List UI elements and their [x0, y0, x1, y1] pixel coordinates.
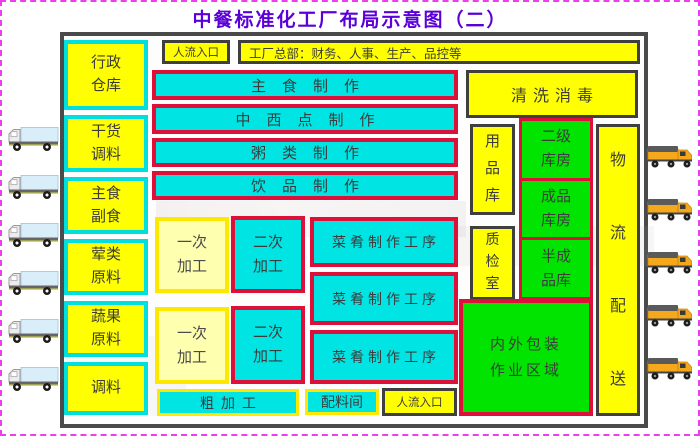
room-label: 主食制作	[235, 75, 375, 96]
delivery-truck-icon	[647, 302, 699, 328]
room-label: 质 检 室	[486, 230, 500, 296]
people-entrance-top: 人流入口	[162, 40, 230, 64]
delivery-truck-icon	[7, 270, 59, 296]
slide: 中餐标准化工厂布局示意图（二） 行政 仓库 干货 调料 主食 副食 荤类 原料 …	[0, 0, 700, 436]
room-label: 用 品 库	[485, 129, 500, 210]
room-dry-goods-seasoning: 干货 调料	[64, 115, 148, 172]
room-label: 菜肴制作工序	[328, 232, 440, 252]
room-label: 粗加工	[193, 393, 263, 413]
outbound-truck-lane	[647, 143, 693, 423]
room-rough-processing: 粗加工	[157, 389, 299, 416]
room-logistics-distribution: 物 流 配 送	[596, 124, 640, 416]
room-label: 一次 加工	[177, 322, 207, 370]
room-semi-finished-warehouse: 半成 品库	[522, 240, 590, 297]
room-staple-food-production: 主食制作	[152, 70, 458, 100]
room-label: 二次 加工	[253, 231, 283, 279]
room-primary-processing-2: 一次 加工	[155, 307, 229, 384]
room-finished-goods-warehouse: 成品 库房	[522, 181, 590, 238]
room-cleaning-disinfection: 清洗消毒	[466, 70, 638, 118]
entrance-label: 人流入口	[397, 394, 443, 410]
room-label: 配料间	[321, 392, 363, 412]
room-secondary-processing-1: 二次 加工	[231, 216, 305, 293]
room-quality-inspection: 质 检 室	[470, 226, 515, 300]
room-porridge-production: 粥类制作	[152, 138, 458, 167]
headquarters-label: 工厂总部：财务、人事、生产、品控等	[249, 43, 462, 62]
room-label: 荤类 原料	[91, 244, 121, 290]
room-seasoning: 调料	[64, 362, 148, 415]
room-label: 物 流 配 送	[610, 124, 626, 416]
people-entrance-bottom: 人流入口	[382, 388, 457, 416]
room-chinese-western-pastry-production: 中西点制作	[152, 104, 458, 134]
page-title: 中餐标准化工厂布局示意图（二）	[2, 5, 698, 32]
room-label: 饮品制作	[235, 175, 375, 196]
delivery-truck-icon	[647, 355, 699, 381]
delivery-truck-icon	[7, 222, 59, 248]
room-dish-production-process-1: 菜肴制作工序	[310, 217, 458, 267]
room-dish-production-process-2: 菜肴制作工序	[310, 272, 458, 325]
entrance-label: 人流入口	[173, 44, 219, 60]
room-ingredients: 配料间	[305, 389, 379, 415]
factory-headquarters-bar: 工厂总部：财务、人事、生产、品控等	[238, 40, 640, 64]
room-label: 行政 仓库	[91, 52, 121, 98]
room-staple-side-food: 主食 副食	[64, 177, 148, 234]
delivery-truck-icon	[647, 249, 699, 275]
room-label: 二级 库房	[541, 125, 571, 173]
room-label: 清洗消毒	[505, 82, 599, 106]
room-label: 调料	[91, 377, 121, 400]
room-meat-raw-material: 荤类 原料	[64, 239, 148, 295]
room-secondary-warehouse: 二级 库房	[522, 121, 590, 178]
room-label: 内外包装 作业区域	[490, 332, 562, 384]
inbound-truck-lane	[7, 126, 59, 416]
room-label: 成品 库房	[541, 185, 571, 233]
delivery-truck-icon	[7, 174, 59, 200]
room-dish-production-process-3: 菜肴制作工序	[310, 330, 458, 384]
room-label: 菜肴制作工序	[328, 347, 440, 367]
delivery-truck-icon	[7, 366, 59, 392]
room-secondary-processing-2: 二次 加工	[231, 306, 305, 384]
warehouse-stack: 二级 库房 成品 库房 半成 品库	[519, 118, 593, 300]
delivery-truck-icon	[647, 143, 699, 169]
room-label: 半成 品库	[541, 245, 571, 293]
room-vegetable-fruit-raw-material: 蔬果 原料	[64, 301, 148, 357]
room-label: 二次 加工	[253, 321, 283, 369]
room-primary-processing-1: 一次 加工	[155, 217, 229, 293]
room-supplies-store: 用 品 库	[470, 124, 515, 215]
delivery-truck-icon	[647, 196, 699, 222]
room-label: 主食 副食	[91, 183, 121, 229]
delivery-truck-icon	[7, 126, 59, 152]
delivery-truck-icon	[7, 318, 59, 344]
room-label: 中西点制作	[219, 109, 390, 130]
room-label: 干货 调料	[91, 121, 121, 167]
room-admin-warehouse: 行政 仓库	[64, 40, 148, 110]
room-label: 粥类制作	[235, 142, 375, 163]
room-label: 一次 加工	[177, 231, 207, 279]
room-label: 蔬果 原料	[91, 306, 121, 352]
room-beverage-production: 饮品制作	[152, 171, 458, 200]
room-packaging-work-area: 内外包装 作业区域	[459, 299, 593, 416]
room-label: 菜肴制作工序	[328, 289, 440, 309]
